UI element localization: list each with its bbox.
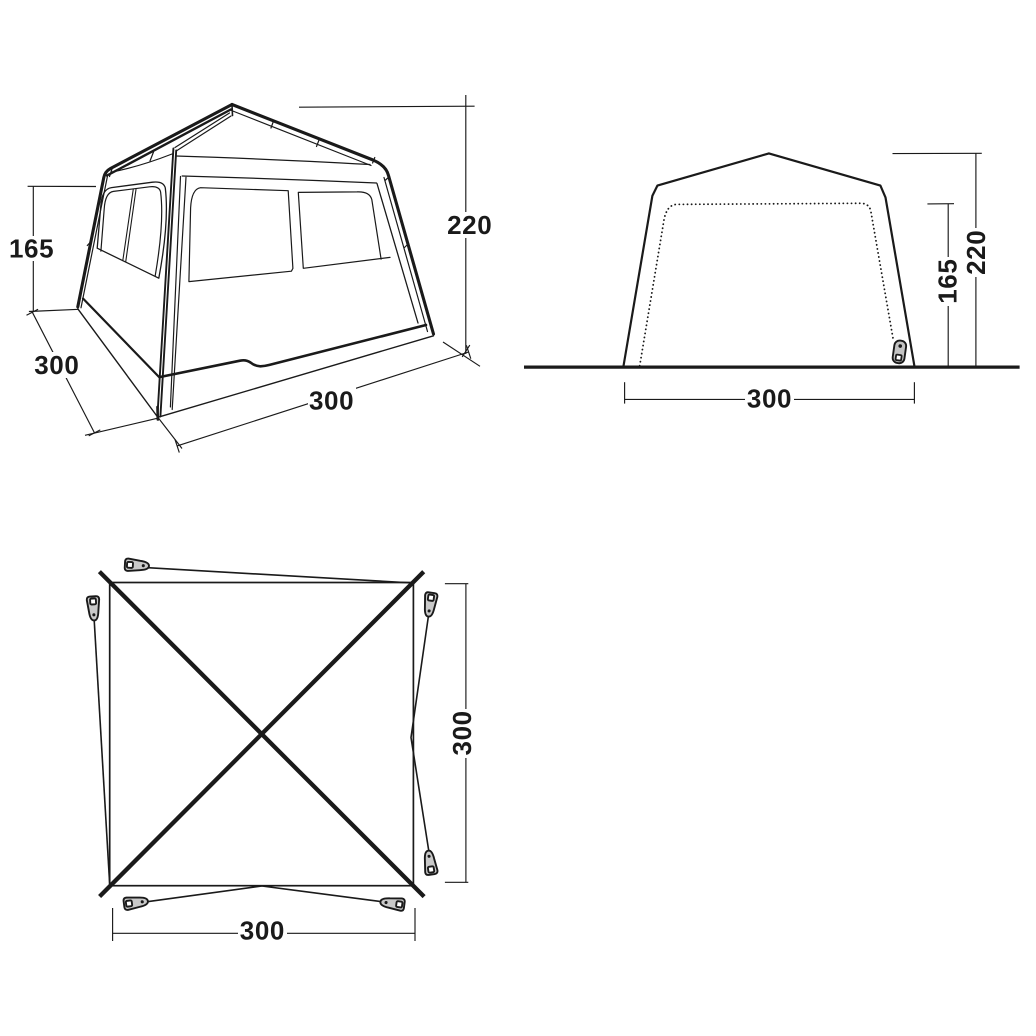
svg-text:300: 300 (240, 916, 285, 946)
svg-text:300: 300 (34, 350, 79, 380)
svg-text:300: 300 (447, 710, 477, 755)
svg-text:165: 165 (933, 259, 963, 304)
svg-text:300: 300 (309, 385, 354, 415)
svg-text:300: 300 (747, 383, 792, 413)
svg-text:165: 165 (9, 234, 54, 264)
svg-text:220: 220 (961, 230, 991, 275)
svg-text:220: 220 (447, 210, 492, 240)
